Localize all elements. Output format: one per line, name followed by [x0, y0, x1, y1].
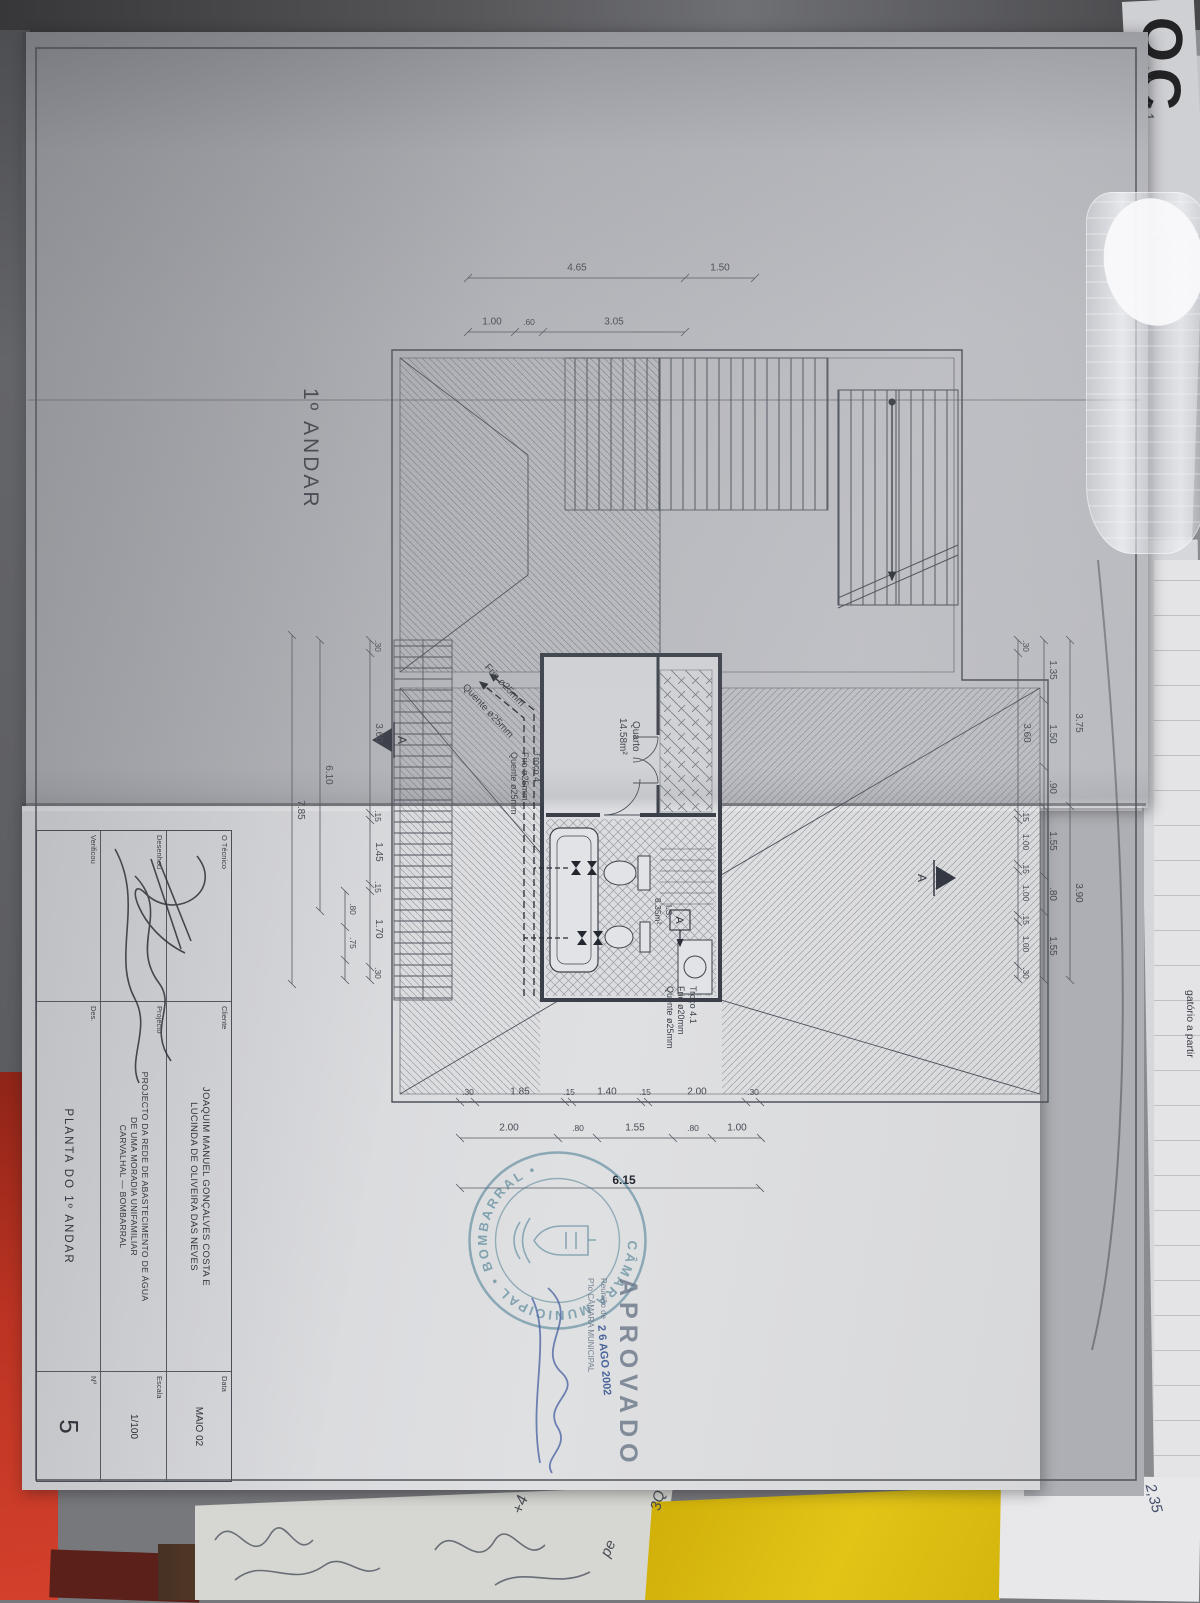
photo-of-architectural-plan: { "sheet": { "floor_label": "1º ANDAR", …	[0, 0, 1200, 1600]
thread-on-sheet	[0, 0, 1200, 1600]
